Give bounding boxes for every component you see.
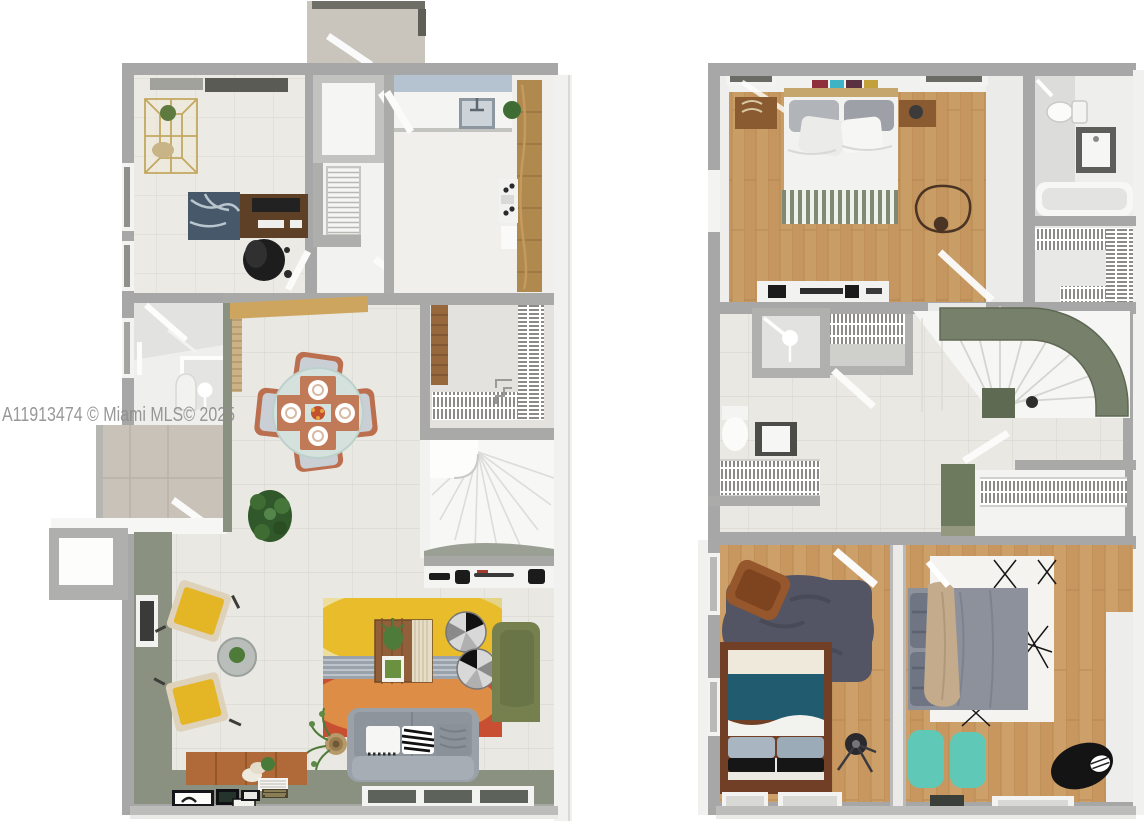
svg-text:A11913474 © Miami MLS© 2025: A11913474 © Miami MLS© 2025 bbox=[2, 404, 235, 426]
